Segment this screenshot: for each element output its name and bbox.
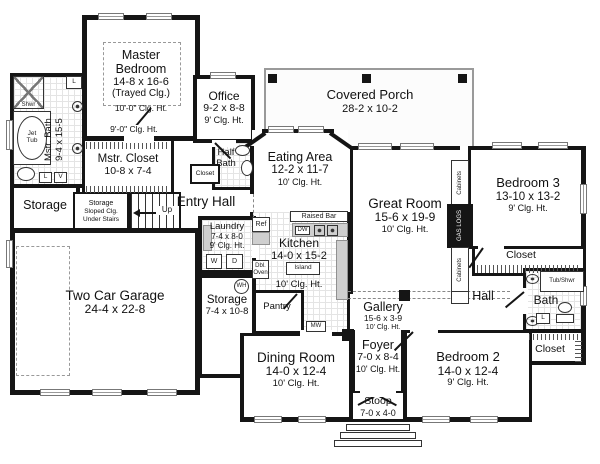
dryer: D: [226, 254, 243, 269]
window: [492, 142, 522, 149]
up-arrow-icon: [133, 209, 140, 217]
window: [470, 416, 498, 423]
pantry-label: Pantry: [253, 302, 301, 313]
half-bath-label: Half Bath: [212, 148, 240, 169]
sink-icon: [72, 101, 83, 112]
bedroom3-label: Bedroom 3 13-10 x 13-2 9' Clg. Ht.: [474, 176, 582, 214]
door-opening: [124, 136, 154, 143]
window: [210, 72, 236, 79]
refrigerator: Ref: [252, 217, 270, 232]
toilet-tank: [556, 314, 574, 323]
window: [298, 126, 324, 133]
covered-porch-label: Covered Porch 28-2 x 10-2: [300, 88, 440, 115]
master-bedroom-label: Master Bedroom 14-8 x 16-6 (Trayed Clg.)…: [100, 48, 182, 113]
bath-label: Bath: [525, 294, 567, 307]
eating-area-label: Eating Area 12-2 x 11-7 10' Clg. Ht.: [256, 150, 344, 187]
window: [6, 240, 13, 268]
storage-mid-label: Storage 7-4 x 10-8: [200, 294, 254, 318]
double-oven: Dbl. Oven: [252, 260, 269, 279]
dining-label: Dining Room 14-0 x 12-4 10' Clg. Ht.: [248, 350, 344, 389]
laundry-label: Laundry 7-4 x 8-0 9' Clg. Ht.: [200, 222, 254, 251]
step: [340, 432, 416, 439]
closet-shelf-hatch: [86, 186, 170, 193]
window: [538, 142, 568, 149]
step: [334, 440, 422, 447]
cooktop-icon: [327, 225, 338, 236]
step: [346, 424, 410, 431]
kitchen-island: Island: [286, 262, 320, 275]
microwave: MW: [306, 321, 326, 332]
porch-post-icon: [362, 74, 371, 83]
cabinets-box: Cabinets: [451, 160, 469, 205]
storage-under-stairs-label: Storage Sloped Clg. Under Stairs: [74, 200, 128, 223]
window: [422, 416, 450, 423]
window: [92, 389, 122, 396]
closet-shelf-hatch: [529, 334, 581, 340]
stoop-label: Stoop 7-0 x 4-0: [350, 396, 406, 418]
window: [98, 13, 124, 20]
closet-bedroom2-label: Closet: [524, 344, 576, 356]
kitchen-counter: [336, 240, 348, 300]
porch-post-icon: [458, 74, 467, 83]
raised-bar: Raised Bar: [290, 211, 348, 222]
window: [400, 143, 434, 150]
closet-ceiling-label: 9'-0" Clg. Ht.: [88, 125, 180, 135]
up-arrow-line: [139, 212, 157, 214]
office-label: Office 9-2 x 8-8 9' Clg. Ht.: [195, 90, 253, 125]
great-room-label: Great Room 15-6 x 19-9 10' Clg. Ht.: [359, 196, 451, 235]
hall-label: Hall: [460, 289, 506, 303]
bedroom2-label: Bedroom 2 14-0 x 12-4 9' Clg. Ht.: [408, 350, 528, 389]
entry-hall-label: Entry Hall: [160, 194, 252, 209]
sink-icon: [526, 274, 539, 284]
closet-shelf-hatch: [86, 142, 170, 149]
dishwasher: DW: [295, 226, 310, 235]
water-heater: WH: [234, 279, 249, 294]
cabinets-box: Cabinets: [451, 247, 469, 292]
window: [298, 416, 326, 423]
window: [254, 416, 282, 423]
window: [268, 126, 294, 133]
kitchen-label: Kitchen 14-0 x 15-2: [262, 237, 336, 263]
linen-cabinet: L: [66, 76, 82, 89]
storage-left-label: Storage: [12, 198, 78, 212]
cooktop-icon: [314, 225, 325, 236]
shower-icon: Shwr: [13, 76, 44, 109]
sink-icon: [72, 143, 83, 154]
master-bath-label: Mstr. Bath 9-4 x 15-5: [42, 94, 68, 186]
closet-office-label: Closet: [190, 170, 220, 177]
window: [358, 143, 392, 150]
washer: W: [206, 254, 222, 269]
window: [146, 13, 172, 20]
closet-bedroom3-label: Closet: [490, 250, 552, 262]
kitchen-ceiling-label: 10' Clg. Ht.: [268, 280, 330, 291]
garage-label: Two Car Garage 24-4 x 22-8: [45, 288, 185, 317]
porch-post-icon: [268, 74, 277, 83]
foyer-label: Foyer 7-0 x 8-4 10' Clg. Ht.: [348, 338, 408, 374]
closet-shelf-hatch: [575, 340, 582, 362]
toilet-icon: [241, 160, 253, 176]
window: [6, 120, 13, 150]
window: [40, 389, 70, 396]
gallery-label: Gallery 15-6 x 3-9 10' Clg. Ht.: [345, 300, 421, 331]
tub-shower: Tub/Shwr: [540, 271, 584, 292]
linen-cabinet: L: [536, 313, 550, 324]
floor-plan: Covered Porch 28-2 x 10-2 Master Bedroom…: [0, 0, 600, 464]
window: [147, 389, 177, 396]
master-closet-label: Mstr. Closet 10-8 x 7-4: [84, 153, 172, 178]
toilet-icon: [17, 167, 35, 181]
